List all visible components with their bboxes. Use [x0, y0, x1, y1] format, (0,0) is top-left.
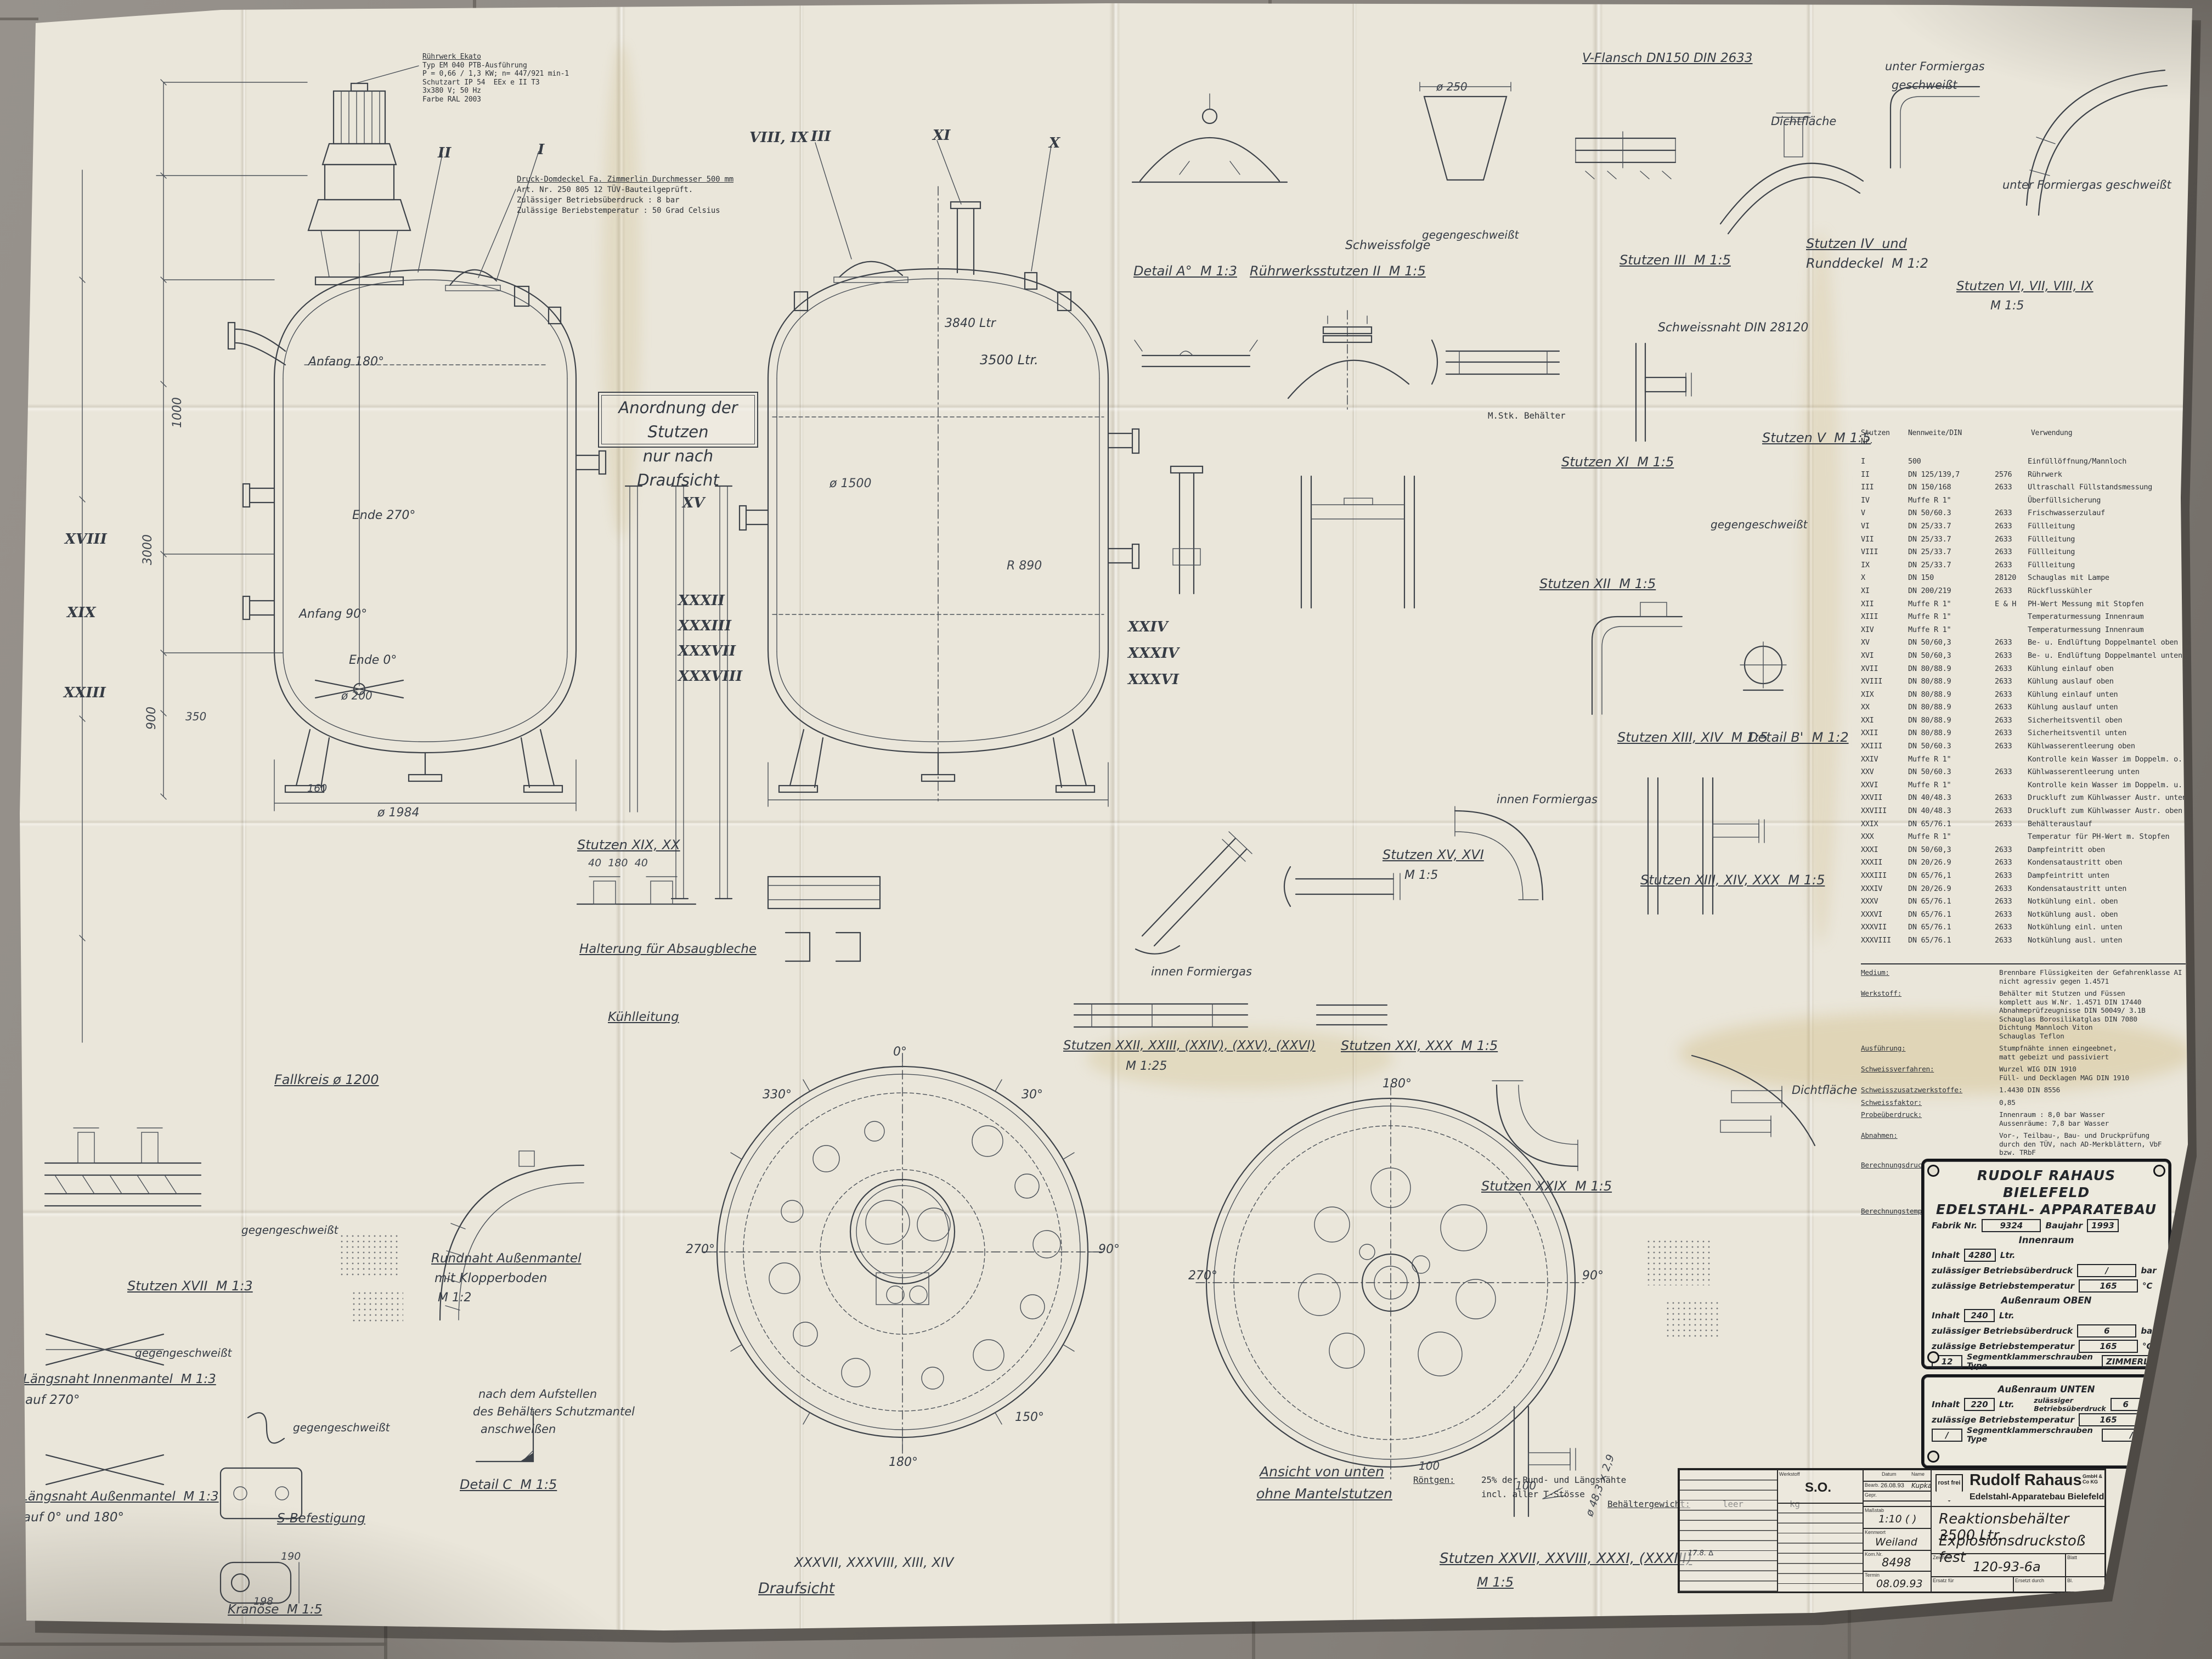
kennwort-cell: Kennwort Weiland [1863, 1528, 1932, 1551]
drawing-label: Detail A° M 1:3 [1133, 264, 1237, 278]
table-row: XXIVMuffe R 1"Kontrolle kein Wasser im D… [1861, 753, 2186, 766]
drawing-label: auf 270° [25, 1393, 80, 1407]
drawing-label: V-Flansch DN150 DIN 2633 [1582, 52, 1753, 65]
temp-label: zulässige Betriebstemperatur [1932, 1341, 2074, 1351]
photo-of-blueprint: Anordnung der Stutzen nur nach Draufsich… [0, 0, 2212, 1659]
drawing-label: X [1049, 136, 1060, 151]
baujahr-value: 1993 [2087, 1219, 2119, 1232]
table-row: XXXIIIDN 65/76,12633Dampfeintritt unten [1861, 870, 2186, 883]
datum-col: Datum [1882, 1471, 1897, 1477]
table-row: XXXIIDN 20/26.92633Kondensataustritt obe… [1861, 856, 2186, 870]
vessel-side-view-agitator [80, 80, 606, 1042]
ersatz-label: Ersatz für [1933, 1578, 1954, 1583]
schrauben-label: Segmentklammerschrauben Type [1967, 1426, 2097, 1444]
drawing-label: XXXVII, XXXVIII, XIII, XIV [794, 1556, 953, 1570]
typed-block: Druck-Domdeckel Fa. Zimmerlin Durchmesse… [517, 174, 733, 216]
table-row: XXIIIDN 50/60.32633Kühlwasserentleerung … [1861, 740, 2186, 753]
bearb-row: Bearb. 26.08.93 Kupka [1863, 1481, 1932, 1492]
drawing-label: R 890 [1007, 560, 1042, 572]
termin-value: 08.09.93 [1876, 1578, 1923, 1590]
drawing-label: XI [933, 128, 950, 143]
unit-grad: °C [2142, 1281, 2153, 1291]
schrauben-type-unten: / [2102, 1429, 2161, 1442]
inhalt-innen: 4280 [1964, 1249, 1996, 1262]
drawing-label: 270° [686, 1243, 715, 1256]
table-row: VIIDN 25/33.72633Füllleitung [1861, 533, 2186, 546]
logo-text: rost frei [1938, 1480, 1961, 1486]
drawing-label: XXXII [678, 594, 725, 608]
komnr-value: 8498 [1882, 1556, 1911, 1569]
ersetzt-label: Ersetzt durch [2015, 1578, 2044, 1583]
temp-label: zulässige Betriebstemperatur [1932, 1281, 2074, 1291]
drawing-label: M.Stk. Behälter [1488, 411, 1566, 421]
drawing-label: XXIV [1128, 620, 1168, 635]
drawing-label: 3840 Ltr [945, 317, 996, 330]
drawing-label: XXXVIII [678, 669, 742, 684]
drawing-label: 100 [1419, 1460, 1440, 1472]
drawing-label: gegengeschweißt [241, 1224, 338, 1236]
drawing-label: M 1:5 [1990, 300, 2024, 312]
nozzle-schedule-table: Stutzen Nr. Nennweite/DIN Verwendung I50… [1861, 429, 2186, 947]
baujahr-label: Baujahr [2045, 1221, 2083, 1231]
temp-innen: 165 [2079, 1279, 2138, 1293]
drawing-label: ohne Mantelstutzen [1256, 1487, 1392, 1501]
zeichnr-value: 120-93-6a [1973, 1559, 2041, 1575]
drawing-label: 3500 Ltr. [980, 353, 1039, 367]
table-row: XXXMuffe R 1"Temperatur für PH-Wert m. S… [1861, 831, 2186, 844]
spec-note: Schweissfaktor:0,85 [1861, 1099, 2186, 1108]
gepr-label: Gepr. [1865, 1492, 1877, 1498]
table-row: IIDN 125/139,72576Rührwerk [1861, 469, 2186, 482]
drawing-label: Stutzen XXI, XXX M 1:5 [1341, 1039, 1498, 1053]
vessel-nameplate: RUDOLF RAHAUS BIELEFELD EDELSTAHL- APPAR… [1921, 1159, 2171, 1469]
drawing-label: incl. aller T-Stösse [1481, 1490, 1585, 1499]
stutzen-arrangement-note-box: Anordnung der Stutzen nur nach Draufsich… [598, 392, 758, 448]
drawing-label: 180° [1383, 1077, 1412, 1090]
drawing-label: gegengeschweißt [293, 1422, 390, 1434]
drawing-label: Stutzen V M 1:5 [1762, 431, 1871, 445]
inhalt-unten: 220 [1964, 1398, 1995, 1411]
temp-label: zulässige Betriebstemperatur [1932, 1415, 2074, 1425]
spec-note: Medium:Brennbare Flüssigkeiten der Gefah… [1861, 969, 2186, 986]
blatt-label: Blatt [2067, 1555, 2077, 1560]
spec-note: Probeüberdruck:Innenraum : 8,0 bar Wasse… [1861, 1111, 2186, 1128]
name-col: Name [1911, 1471, 1925, 1477]
drawing-label: 40 180 40 [588, 858, 648, 869]
table-row: VDN 50/60.32633Frischwasserzulauf [1861, 507, 2186, 520]
drawing-label: mit Klopperboden [435, 1272, 547, 1285]
drawing-label: 3000 [142, 534, 154, 565]
unten-heading: Außenraum UNTEN [1932, 1383, 2161, 1397]
termin-cell: Termin 08.09.93 [1863, 1571, 1932, 1593]
col-stutzen-nr: Stutzen Nr. [1861, 429, 1908, 455]
blatt-cell: Blatt [2065, 1553, 2106, 1577]
drawing-label: M 1:5 [1404, 869, 1438, 882]
table-row: XVIIIDN 80/88.92633Kühlung auslauf oben [1861, 675, 2186, 689]
title-block: 17.8. ∆ Werkstoff S.O. Datum Name Bearb.… [1678, 1468, 2106, 1593]
drawing-title-cell: Reaktionsbehälter 3500 Ltr. Explosionsdr… [1931, 1506, 2106, 1554]
drawing-label: gegengeschweißt [1711, 519, 1807, 531]
drawing-label: M 1:5 [1477, 1576, 1514, 1589]
bl-label: Bl. [2067, 1578, 2073, 1583]
bearb-label: Bearb. [1865, 1482, 1880, 1488]
table-row: XVIDN 50/60,32633Be- u. Endlüftung Doppe… [1861, 650, 2186, 663]
drawing-label: Fallkreis ø 1200 [274, 1073, 379, 1087]
drawing-label: 1000 [171, 397, 184, 428]
drawing-label: Ansicht von unten [1260, 1465, 1384, 1479]
druck-oben: 6 [2077, 1324, 2136, 1338]
drawing-label: 25% der Rund- und Längsnähte [1481, 1476, 1626, 1485]
table-row: XXVIIDN 40/48.32633Druckluft zum Kühlwas… [1861, 792, 2186, 805]
drawing-label: XXIII [64, 686, 106, 701]
drawing-label: Dichtfläche [1771, 115, 1836, 127]
drawing-label: 0° [893, 1046, 907, 1058]
massstab-value: 1:10 ( ) [1878, 1513, 1917, 1525]
table-row: XIIMuffe R 1"E & HPH-Wert Messung mit St… [1861, 598, 2186, 611]
table-row: XXXIVDN 20/26.92633Kondensataustritt unt… [1861, 883, 2186, 896]
drawing-label: gegengeschweißt [135, 1347, 232, 1359]
drawing-label: XXXVII [678, 644, 736, 659]
table-row: XXVIIIDN 40/48.32633Druckluft zum Kühlwa… [1861, 805, 2186, 818]
table-row: XDN 15028120Schauglas mit Lampe [1861, 572, 2186, 585]
drawing-label: 270° [1188, 1269, 1217, 1282]
drawing-label: unter Formiergas [1885, 60, 1985, 72]
detail-sketches [45, 70, 2167, 1603]
kennwort-value: Weiland [1875, 1536, 1917, 1548]
drawing-label: 90° [1582, 1269, 1604, 1282]
druck-label: zulässiger Betriebsüberdruck [1932, 1326, 2073, 1336]
drawing-label: XV [682, 496, 704, 511]
drawing-label: Halterung für Absaugbleche [579, 943, 757, 956]
company-sub: Edelstahl-Apparatebau Bielefeld [1970, 1492, 2104, 1502]
drawing-label: innen Formiergas [1151, 966, 1252, 978]
drawing-label: Stutzen IV und [1806, 237, 1907, 251]
drawing-label: 30° [1022, 1088, 1043, 1101]
drawing-label: Kranöse M 1:5 [228, 1603, 322, 1616]
drawing-label: ø 200 [341, 690, 373, 702]
table-row: I500Einfüllöffnung/Mannloch [1861, 455, 2186, 469]
ersetzt-cell: Ersetzt durch [2013, 1576, 2066, 1593]
drawing-label: Stutzen XXVII, XXVIII, XXXI, (XXXIII) [1440, 1551, 1692, 1566]
spec-note: Werkstoff:Behälter mit Stutzen und Füsse… [1861, 990, 2186, 1041]
drawing-label: Ende 270° [352, 509, 415, 522]
drawing-label: Stutzen XIX, XX [577, 838, 680, 852]
table-row: XXXIDN 50/60,32633Dampfeintritt oben [1861, 844, 2186, 857]
kennwort-label: Kennwort [1865, 1530, 1886, 1535]
unit-ltr: Ltr. [2000, 1250, 2016, 1260]
tile-grout [0, 18, 38, 20]
werkstoff-value: S.O. [1805, 1480, 1831, 1496]
komnr-label: Kom.Nr. [1865, 1551, 1883, 1557]
drawing-label: S-Befestigung [277, 1512, 365, 1525]
drawing-label: Rührwerksstutzen II M 1:5 [1250, 264, 1426, 278]
drawing-label: M 1:25 [1126, 1060, 1167, 1073]
inhalt-label: Inhalt [1932, 1311, 1960, 1321]
drawing-label: geschweißt [1892, 79, 1957, 91]
drawing-label: XXXVI [1128, 673, 1179, 687]
drawing-label: Stutzen III M 1:5 [1620, 253, 1731, 267]
werkstoff-rows [1777, 1503, 1864, 1593]
drawing-label: ø 1984 [377, 806, 419, 819]
drawing-label: Runddeckel M 1:2 [1806, 257, 1928, 270]
revision-scribble: 17.8. ∆ [1688, 1550, 1713, 1558]
drawing-label: 150° [1015, 1411, 1044, 1424]
drawing-label: Rundnaht Außenmantel [431, 1252, 581, 1265]
drawing-label: ø 250 [1436, 81, 1468, 93]
drawing-label: Stutzen XXII, XXIII, (XXIV), (XXV), (XXV… [1063, 1039, 1316, 1052]
tile-grout [0, 1643, 386, 1646]
company-name: Rudolf Rahaus [1970, 1471, 2082, 1489]
drawing-label: I [538, 143, 544, 157]
fabrik-label: Fabrik Nr. [1932, 1221, 1977, 1231]
drawing-label: Stutzen XXIX M 1:5 [1481, 1180, 1612, 1193]
nameplate-title1: RUDOLF RAHAUS BIELEFELD [1932, 1167, 2161, 1201]
blueprint-sheet: Anordnung der Stutzen nur nach Draufsich… [0, 0, 2212, 1659]
drawing-label: Längsnaht Außenmantel M 1:3 [21, 1490, 219, 1503]
table-row: XIIIMuffe R 1"Temperaturmessung Innenrau… [1861, 611, 2186, 624]
unit-ltr: Ltr. [1999, 1311, 2015, 1321]
table-row: XIDN 200/2192633Rückflusskühler [1861, 585, 2186, 598]
zeichnr-cell: Zeich.Nr. 120-93-6a [1931, 1553, 2066, 1577]
table-row: XIXDN 80/88.92633Kühlung einlauf unten [1861, 689, 2186, 702]
druck-label: zulässiger Betriebsüberdruck [1932, 1266, 2073, 1276]
drawing-label: Stutzen XI M 1:5 [1561, 455, 1674, 469]
rostfrei-logo: rost frei [1936, 1474, 1963, 1502]
table-row: XXXVDN 65/76.12633Notkühlung einl. oben [1861, 895, 2186, 909]
spec-note: Schweisszusatzwerkstoffe:1.4430 DIN 8556 [1861, 1086, 2186, 1095]
drawing-label: Detail C M 1:5 [460, 1478, 557, 1492]
drawing-label: 190 [281, 1551, 301, 1562]
druck-unten: 6 [2111, 1398, 2141, 1411]
drawing-label: Stutzen XIII, XIV M 1:5 [1617, 731, 1768, 744]
company-cell: rost frei Rudolf Rahaus GmbH & Co KG Ede… [1931, 1470, 2106, 1507]
drawing-label: XIX [67, 606, 96, 620]
drawing-label: M 1:2 [438, 1291, 471, 1304]
bearb-datum: 26.08.93 [1881, 1482, 1904, 1489]
temp-oben: 165 [2079, 1340, 2138, 1353]
table-rows: I500Einfüllöffnung/MannlochIIDN 125/139,… [1861, 455, 2186, 947]
nameplate-upper: RUDOLF RAHAUS BIELEFELD EDELSTAHL- APPAR… [1921, 1159, 2171, 1369]
table-row: XXVDN 50/60.32633Kühlwasserentleerung un… [1861, 766, 2186, 779]
table-row: IXDN 25/33.72633Füllleitung [1861, 559, 2186, 572]
spec-note: Schweissverfahren:Wurzel WIG DIN 1910 Fü… [1861, 1065, 2186, 1082]
druck-label: zulässiger Betriebsüberdruck [2034, 1396, 2106, 1413]
termin-label: Termin [1865, 1572, 1880, 1578]
drawing-label: Stutzen XII M 1:5 [1539, 577, 1656, 591]
nameplate-title2: EDELSTAHL- APPARATEBAU [1932, 1201, 2161, 1218]
drawing-label: Schweissnaht DIN 28120 [1658, 321, 1808, 334]
druck-innen: / [2077, 1264, 2136, 1277]
table-row: XXDN 80/88.92633Kühlung auslauf unten [1861, 701, 2186, 714]
temp-unten: 165 [2079, 1413, 2138, 1426]
table-row: XVIIDN 80/88.92633Kühlung einlauf oben [1861, 663, 2186, 676]
table-row: XXXVIDN 65/76.12633Notkühlung ausl. oben [1861, 909, 2186, 922]
drawing-label: 350 [185, 711, 206, 723]
fabrik-value: 9324 [1982, 1219, 2041, 1232]
spec-note: Ausführung:Stumpfnähte innen eingeebnet,… [1861, 1045, 2186, 1062]
drawing-label: anschweißen [481, 1423, 556, 1435]
drawing-label: 90° [1098, 1243, 1120, 1256]
werkstoff-label: Werkstoff [1779, 1471, 1800, 1477]
drawing-label: nach dem Aufstellen [478, 1388, 597, 1400]
table-header: Stutzen Nr. Nennweite/DIN Verwendung [1861, 429, 2186, 455]
ersatz-cell: Ersatz für [1931, 1576, 2014, 1593]
oben-heading: Außenraum OBEN [1932, 1294, 2161, 1308]
innenraum-heading: Innenraum [1932, 1233, 2161, 1248]
drawing-label: Stutzen XV, XVI [1383, 848, 1484, 862]
gepr-row: Gepr. [1863, 1491, 1932, 1502]
drawing-label: Stutzen XVII M 1:3 [127, 1279, 253, 1293]
note-line-2: nur nach Draufsicht [602, 444, 754, 492]
drawing-label: Kühlleitung [608, 1011, 679, 1024]
drawing-label: VIII, IX [749, 131, 808, 145]
table-row: XVDN 50/60,32633Be- u. Endlüftung Doppel… [1861, 636, 2186, 650]
stutzen-arrangement-note: Anordnung der Stutzen nur nach Draufsich… [601, 395, 755, 444]
inhalt-label: Inhalt [1932, 1250, 1960, 1260]
werkstoff-cell: Werkstoff S.O. [1777, 1470, 1864, 1504]
drawing-label: unter Formiergas geschweißt [2002, 179, 2171, 191]
revision-strip [1679, 1470, 1778, 1593]
unit-ltr: Ltr. [1999, 1400, 2015, 1409]
col-nennweite: Nennweite/DIN [1908, 429, 2031, 455]
drawing-label: auf 0° und 180° [23, 1511, 124, 1524]
table-row: XXIXDN 65/76.12633Behälterauslauf [1861, 818, 2186, 831]
typed-block: Rührwerk EkatoTyp EM 040 PTB-AusführungP… [422, 53, 569, 104]
table-row: VIDN 25/33.72633Füllleitung [1861, 520, 2186, 533]
table-row: XXXVIIDN 65/76.12633Notkühlung einl. unt… [1861, 921, 2186, 934]
komnr-cell: Kom.Nr. 8498 [1863, 1550, 1932, 1572]
massstab-cell: Maßstab 1:10 ( ) [1863, 1506, 1932, 1529]
drawing-label: Anfang 180° [308, 356, 384, 368]
note-line-1: Anordnung der Stutzen [602, 396, 754, 444]
col-verwendung: Verwendung [2031, 429, 2186, 455]
drawing-label: Schweissfolge [1345, 239, 1430, 252]
drawing-label: XVIII [65, 532, 107, 547]
drawing-label: 160 [307, 783, 327, 794]
table-row: VIIIDN 25/33.72633Füllleitung [1861, 546, 2186, 559]
spec-note: Abnahmen:Vor-, Teilbau-, Bau- und Druckp… [1861, 1132, 2186, 1158]
datum-name-header: Datum Name [1863, 1470, 1932, 1482]
table-row: IVMuffe R 1"Überfüllsicherung [1861, 494, 2186, 507]
drawing-label: Stutzen VI, VII, VIII, IX [1956, 280, 2093, 293]
zeichnr-label: Zeich.Nr. [1933, 1555, 1953, 1560]
drawing-label: innen Formiergas [1497, 793, 1598, 805]
top-view-draufsicht [702, 1053, 1103, 1459]
drawing-label: XXXIV [1128, 646, 1179, 661]
table-row: XXXVIIIDN 65/76.12633Notkühlung ausl. un… [1861, 934, 2186, 947]
schrauben-label: Segmentklammerschrauben Type [1967, 1353, 2097, 1370]
inhalt-label: Inhalt [1932, 1400, 1960, 1409]
drawing-label: Ende 0° [349, 654, 397, 667]
drawing-label: Stutzen XIII, XIV, XXX M 1:5 [1640, 873, 1825, 887]
drawing-label: III [811, 129, 831, 144]
vessel-side-view-plain [740, 187, 1139, 806]
drawing-label: ø 1500 [830, 477, 871, 490]
drawing-label: des Behälters Schutzmantel [473, 1406, 635, 1418]
schrauben-count-unten: / [1932, 1429, 1962, 1442]
drawing-label: II [438, 146, 451, 161]
drawing-label: Röntgen: [1413, 1476, 1454, 1485]
drawing-label: 198 [253, 1596, 273, 1607]
table-row: XIVMuffe R 1"Temperaturmessung Innenraum [1861, 624, 2186, 637]
drawing-label: Draufsicht [758, 1581, 834, 1596]
drawing-label: Längsnaht Innenmantel M 1:3 [23, 1373, 216, 1386]
drawing-label: Dichtfläche [1792, 1084, 1857, 1096]
company-suffix: GmbH & Co KG [2083, 1474, 2105, 1485]
table-row: IIIDN 150/1682633Ultraschall Füllstandsm… [1861, 481, 2186, 494]
table-row: XXIIDN 80/88.92633Sicherheitsventil unte… [1861, 727, 2186, 740]
table-row: XXVIMuffe R 1"Kontrolle kein Wasser im D… [1861, 779, 2186, 792]
table-row: XXIDN 80/88.92633Sicherheitsventil oben [1861, 714, 2186, 727]
drawing-label: 180° [889, 1456, 918, 1469]
drawing-label: 900 [145, 707, 158, 730]
bearb-signature: Kupka [1911, 1482, 1932, 1489]
drawing-label: Anfang 90° [299, 608, 367, 620]
unit-bar: bar [2141, 1266, 2156, 1276]
massstab-label: Maßstab [1865, 1508, 1884, 1513]
drawing-label: gegengeschweißt [1422, 229, 1519, 241]
drawing-label: XXXIII [678, 619, 731, 634]
drawing-label: Detail B' M 1:2 [1748, 731, 1849, 744]
drawing-label: 330° [763, 1088, 792, 1101]
inhalt-oben: 240 [1964, 1309, 1995, 1322]
